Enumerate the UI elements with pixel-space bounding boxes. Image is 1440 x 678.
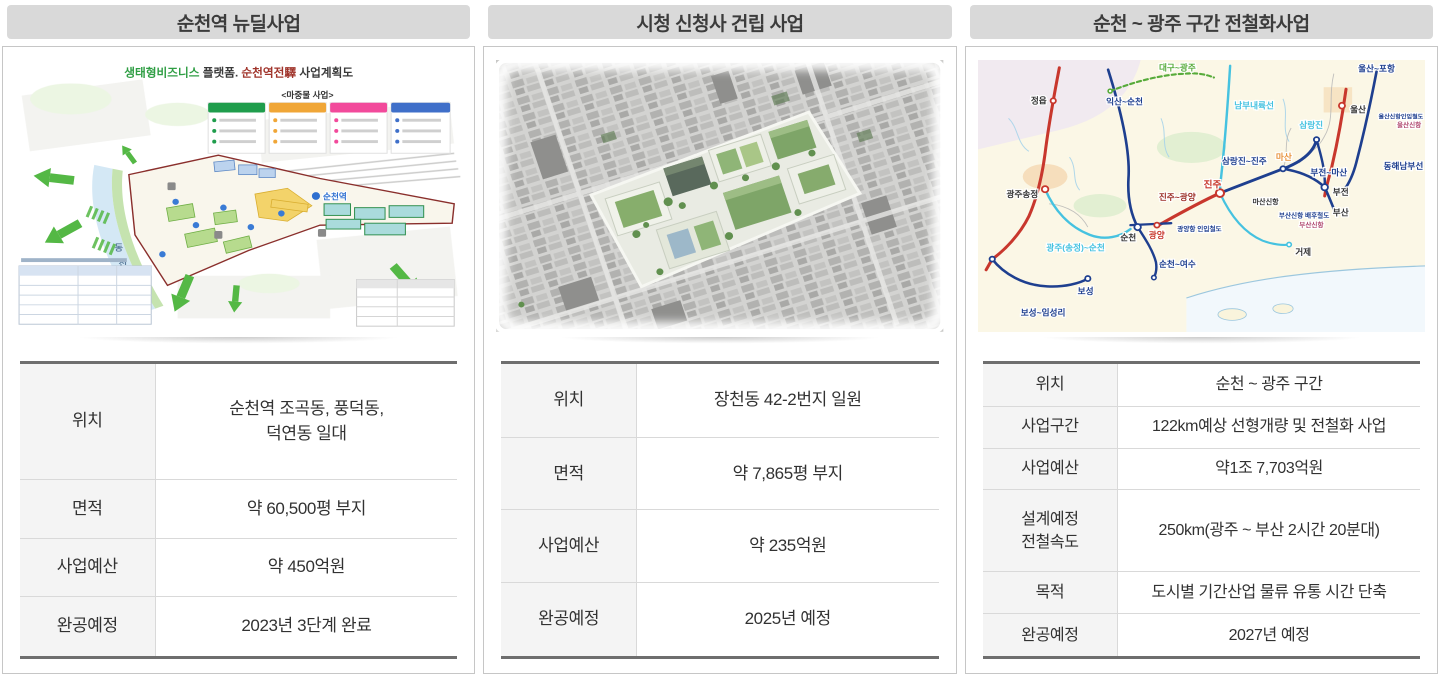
table-row: 위치 순천 ~ 광주 구간 [983,363,1420,407]
row-label: 설계예정 전철속도 [983,490,1118,572]
svg-text:부전~마산: 부전~마산 [1310,168,1347,178]
svg-text:진주: 진주 [1203,178,1221,190]
panel-content: 정읍 익산~순천 대구~광주 남부내륙선 울산~포항 울산 울산신항인입철도 울… [965,46,1438,674]
panel-title: 순천 ~ 광주 구간 전철화사업 [1093,9,1310,36]
panel-title-bar: 시청 신청사 건립 사업 [488,5,951,39]
row-label: 사업예산 [501,510,636,582]
row-label: 목적 [983,572,1118,614]
row-value: 약 7,865평 부지 [636,438,938,510]
svg-text:부산신항 배후철도: 부산신항 배후철도 [1279,211,1329,220]
project-spec-table: 위치 순천역 조곡동, 풍덕동, 덕연동 일대 면적 약 60,500평 부지 … [20,361,457,659]
table-row: 완공예정 2025년 예정 [501,582,938,657]
row-value: 약 60,500평 부지 [155,480,457,539]
table-row: 면적 약 60,500평 부지 [20,480,457,539]
table-row: 면적 약 7,865평 부지 [501,438,938,510]
panel-title: 시청 신청사 건립 사업 [636,9,803,36]
svg-text:마산신항: 마산신항 [1252,197,1279,206]
svg-text:남부내륙선: 남부내륙선 [1234,101,1274,111]
svg-text:순천: 순천 [1120,233,1136,243]
svg-text:울산신항인입철도: 울산신항인입철도 [1378,112,1423,120]
panel-title: 순천역 뉴딜사업 [177,9,301,36]
row-value: 약1조 7,703억원 [1118,448,1420,490]
row-label: 사업예산 [983,448,1118,490]
svg-text:삼랑진: 삼랑진 [1299,120,1323,130]
table-row: 목적 도시별 기간산업 물류 유통 시간 단축 [983,572,1420,614]
svg-text:대구~광주: 대구~광주 [1159,63,1196,73]
table-row: 설계예정 전철속도 250km(광주 ~ 부산 2시간 20분대) [983,490,1420,572]
three-project-panels: 순천역 뉴딜사업 [0,0,1440,678]
svg-text:동해남부선: 동해남부선 [1383,161,1423,171]
row-value: 순천 ~ 광주 구간 [1118,363,1420,407]
suncheon-station-label: 순천역 [323,192,347,202]
table-row: 사업구간 122km예상 선형개량 및 전철화 사업 [983,406,1420,448]
legend-card-green [208,103,265,154]
svg-text:광양: 광양 [1148,230,1164,240]
panel-title-bar: 순천역 뉴딜사업 [7,5,470,39]
row-value: 도시별 기간산업 물류 유통 시간 단축 [1118,572,1420,614]
image-drop-shadow [988,337,1415,346]
legend-heading: <마중물 사업> [281,90,333,100]
mini-table-right [357,280,455,327]
row-value: 2027년 예정 [1118,614,1420,658]
legend-card-pink [330,103,387,154]
row-label: 완공예정 [501,582,636,657]
row-value: 장천동 42-2번지 일원 [636,363,938,438]
row-label: 완공예정 [983,614,1118,658]
svg-text:부전: 부전 [1332,187,1348,197]
row-label: 완공예정 [20,597,155,658]
svg-text:보성: 보성 [1077,286,1093,296]
project-spec-table: 위치 순천 ~ 광주 구간 사업구간 122km예상 선형개량 및 전철화 사업… [983,361,1420,659]
svg-text:보성~임성리: 보성~임성리 [1020,308,1065,318]
image-drop-shadow [25,337,452,346]
row-label: 면적 [20,480,155,539]
table-row: 완공예정 2027년 예정 [983,614,1420,658]
svg-text:익산~순천: 익산~순천 [1106,97,1143,107]
row-label: 위치 [983,363,1118,407]
svg-text:정읍: 정읍 [1031,96,1047,106]
table-row: 위치 장천동 42-2번지 일원 [501,363,938,438]
row-value: 약 450억원 [155,538,457,597]
svg-text:부산: 부산 [1332,208,1348,218]
panel-city-hall-construction: 시청 신청사 건립 사업 [483,0,956,678]
image-drop-shadow [506,337,933,346]
panel-suncheon-station-newdeal: 순천역 뉴딜사업 [2,0,475,678]
table-row: 위치 순천역 조곡동, 풍덕동, 덕연동 일대 [20,363,457,480]
svg-text:울산: 울산 [1350,105,1366,115]
svg-text:거제: 거제 [1295,247,1311,257]
masterplan-image: 순천역 동 천 생태형비즈니스 플랫폼. 순천역전驛 사업계획도 <마중물 사업… [15,60,462,332]
svg-text:마산: 마산 [1276,152,1292,162]
svg-text:울산신항: 울산신항 [1397,120,1421,129]
svg-text:울산~포항: 울산~포항 [1358,64,1395,74]
svg-text:광주송정: 광주송정 [1006,189,1038,199]
row-value: 2025년 예정 [636,582,938,657]
row-label: 면적 [501,438,636,510]
aerial-render-image [496,60,943,332]
table-row: 완공예정 2023년 3단계 완료 [20,597,457,658]
panel-content: 순천역 동 천 생태형비즈니스 플랫폼. 순천역전驛 사업계획도 <마중물 사업… [2,46,475,674]
row-label: 사업구간 [983,406,1118,448]
project-spec-table: 위치 장천동 42-2번지 일원 면적 약 7,865평 부지 사업예산 약 2… [501,361,938,659]
mini-table-left [19,258,151,324]
row-label: 위치 [20,363,155,480]
legend-card-blue [391,103,450,154]
panel-content: 위치 장천동 42-2번지 일원 면적 약 7,865평 부지 사업예산 약 2… [483,46,956,674]
table-row: 사업예산 약 450억원 [20,538,457,597]
row-value: 250km(광주 ~ 부산 2시간 20분대) [1118,490,1420,572]
svg-text:진주~광양: 진주~광양 [1159,192,1196,202]
svg-text:부산신항: 부산신항 [1299,220,1323,229]
svg-text:광주(송정)~순천: 광주(송정)~순천 [1046,243,1105,253]
legend-card-orange [269,103,326,154]
svg-text:광양항 인입철도: 광양항 인입철도 [1177,224,1221,233]
row-value: 약 235억원 [636,510,938,582]
table-row: 사업예산 약 235억원 [501,510,938,582]
svg-text:삼랑진~진주: 삼랑진~진주 [1222,156,1267,166]
table-row: 사업예산 약1조 7,703억원 [983,448,1420,490]
row-value: 2023년 3단계 완료 [155,597,457,658]
row-value: 122km예상 선형개량 및 전철화 사업 [1118,406,1420,448]
row-label: 위치 [501,363,636,438]
masterplan-title: 생태형비즈니스 플랫폼. 순천역전驛 사업계획도 [124,66,353,80]
row-value: 순천역 조곡동, 풍덕동, 덕연동 일대 [155,363,457,480]
railway-map-image: 정읍 익산~순천 대구~광주 남부내륙선 울산~포항 울산 울산신항인입철도 울… [978,60,1425,332]
svg-text:동: 동 [115,243,123,253]
svg-text:순천~여수: 순천~여수 [1159,259,1196,269]
panel-suncheon-gwangju-electrification: 순천 ~ 광주 구간 전철화사업 [965,0,1438,678]
panel-title-bar: 순천 ~ 광주 구간 전철화사업 [970,5,1433,39]
row-label: 사업예산 [20,538,155,597]
